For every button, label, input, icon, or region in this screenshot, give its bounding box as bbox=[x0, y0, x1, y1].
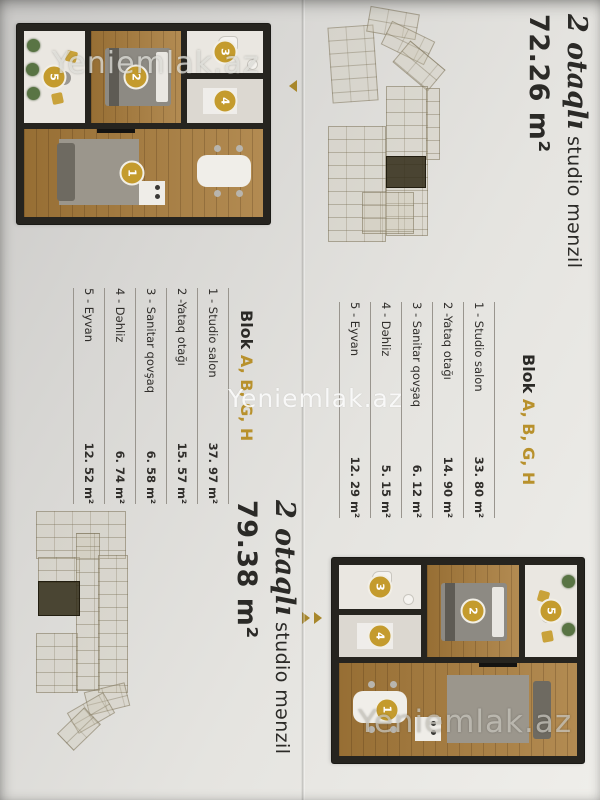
room-bedroom: 2 bbox=[427, 565, 519, 657]
room-name: 4 - Dəhliz bbox=[379, 302, 393, 356]
total-area-7226: 72.26 m² bbox=[523, 14, 554, 268]
block-letters: A, B, G, H bbox=[519, 399, 538, 485]
room-area: 5. 15 m² bbox=[379, 465, 393, 518]
room-area: 6. 74 m² bbox=[113, 451, 127, 504]
room-balcony: 5 bbox=[525, 565, 577, 657]
highlighted-unit bbox=[38, 581, 80, 616]
sink-icon bbox=[404, 595, 413, 604]
plant-icon bbox=[26, 63, 39, 76]
kitchen-counter-icon bbox=[139, 181, 165, 205]
total-area-7938: 79.38 m² bbox=[231, 500, 262, 754]
site-plan-lower bbox=[20, 503, 162, 767]
watermark: Yeniemlak.az bbox=[228, 384, 403, 413]
plant-icon bbox=[562, 623, 575, 636]
room-name: 3 - Sanitar qovşaq bbox=[144, 288, 158, 393]
plan-pointer-arrow-icon bbox=[289, 80, 297, 92]
chair-icon bbox=[236, 145, 243, 152]
room-area: 37. 97 m² bbox=[206, 443, 220, 504]
title-line: 2 otaqlı studio mənzil bbox=[269, 500, 300, 754]
building-wing bbox=[426, 88, 440, 160]
room-area: 6. 58 m² bbox=[144, 451, 158, 504]
room-name: 4 - Dəhliz bbox=[113, 288, 127, 342]
room-name: 1 - Studio salon bbox=[206, 288, 220, 378]
room-area: 14. 90 m² bbox=[441, 457, 455, 518]
brochure-photo: 2 otaqlı studio mənzil 72.26 m² Blok A, … bbox=[0, 0, 600, 800]
building-wing bbox=[38, 557, 80, 583]
block-word: Blok bbox=[237, 310, 256, 355]
room-name: 2 -Yataq otağı bbox=[175, 288, 189, 366]
title-rest-part: studio mənzil bbox=[563, 130, 585, 269]
room-bathroom: 3 bbox=[339, 565, 421, 609]
building-wing bbox=[98, 555, 128, 693]
plant-icon bbox=[27, 39, 40, 52]
room-row: 3 - Sanitar qovşaq6. 12 m² bbox=[401, 302, 432, 518]
room-number-badge: 4 bbox=[368, 624, 393, 649]
room-name: 1 - Studio salon bbox=[472, 302, 486, 392]
plan-pointer-arrow-icon bbox=[314, 612, 322, 624]
tv-icon bbox=[97, 129, 135, 133]
room-row: 1 - Studio salon37. 97 m² bbox=[197, 288, 228, 504]
block-word: Blok bbox=[519, 354, 538, 399]
room-number-badge: 1 bbox=[119, 161, 144, 186]
room-area: 12. 29 m² bbox=[348, 457, 362, 518]
cushion-icon bbox=[51, 92, 64, 105]
room-row: 2 -Yataq otağı15. 57 m² bbox=[166, 288, 197, 504]
title-line: 2 otaqlı studio mənzil bbox=[561, 14, 592, 268]
block-heading: Blok A, B, G, H bbox=[519, 302, 538, 518]
building-wing bbox=[327, 24, 378, 103]
room-rows: 1 - Studio salon37. 97 m² 2 -Yataq otağı… bbox=[73, 288, 229, 504]
room-area: 15. 57 m² bbox=[175, 443, 189, 504]
room-area: 33. 80 m² bbox=[472, 457, 486, 518]
room-number-badge: 5 bbox=[539, 599, 564, 624]
room-name: 5 - Eyvan bbox=[348, 302, 362, 356]
room-hallway: 4 bbox=[187, 79, 263, 123]
building-wing bbox=[362, 192, 414, 234]
chair-icon bbox=[390, 681, 397, 688]
site-plan-upper bbox=[322, 10, 474, 260]
room-name: 5 - Eyvan bbox=[82, 288, 96, 342]
dining-table-icon bbox=[197, 155, 251, 187]
room-row: 1 - Studio salon33. 80 m² bbox=[463, 302, 494, 518]
pillow-icon bbox=[492, 587, 504, 637]
room-name: 3 - Sanitar qovşaq bbox=[410, 302, 424, 407]
stove-icon bbox=[155, 194, 160, 199]
room-name: 2 -Yataq otağı bbox=[441, 302, 455, 380]
room-number-badge: 4 bbox=[213, 89, 238, 114]
room-hallway: 4 bbox=[339, 615, 421, 657]
listing-title-7226: 2 otaqlı studio mənzil 72.26 m² bbox=[523, 14, 592, 268]
listing-title-7938: 2 otaqlı studio mənzil 79.38 m² bbox=[231, 500, 300, 754]
title-script-part: 2 otaqlı bbox=[269, 500, 300, 616]
title-rest-part: studio mənzil bbox=[271, 616, 293, 755]
highlighted-unit bbox=[386, 156, 426, 188]
chair-icon bbox=[368, 681, 375, 688]
chair-icon bbox=[214, 190, 221, 197]
room-number-badge: 2 bbox=[461, 599, 486, 624]
cushion-icon bbox=[541, 630, 554, 643]
plant-icon bbox=[562, 575, 575, 588]
bed-throw bbox=[445, 583, 455, 641]
chair-icon bbox=[236, 190, 243, 197]
chair-icon bbox=[214, 145, 221, 152]
watermark: Yeniemlak.az bbox=[358, 704, 572, 740]
room-row: 4 - Dəhliz6. 74 m² bbox=[104, 288, 135, 504]
building-wing bbox=[36, 633, 78, 693]
room-area: 6. 12 m² bbox=[410, 465, 424, 518]
room-row: 3 - Sanitar qovşaq6. 58 m² bbox=[135, 288, 166, 504]
tv-icon bbox=[479, 663, 517, 667]
title-script-part: 2 otaqlı bbox=[561, 14, 592, 130]
plant-icon bbox=[27, 87, 40, 100]
room-studio-salon: 1 bbox=[24, 129, 263, 217]
room-area: 12. 52 m² bbox=[82, 443, 96, 504]
watermark: Yeniemlak.az bbox=[52, 46, 260, 81]
stove-icon bbox=[155, 185, 160, 190]
room-number-badge: 3 bbox=[368, 575, 393, 600]
room-row: 2 -Yataq otağı14. 90 m² bbox=[432, 302, 463, 518]
room-row: 5 - Eyvan12. 52 m² bbox=[73, 288, 104, 504]
sofa-icon bbox=[57, 143, 75, 201]
